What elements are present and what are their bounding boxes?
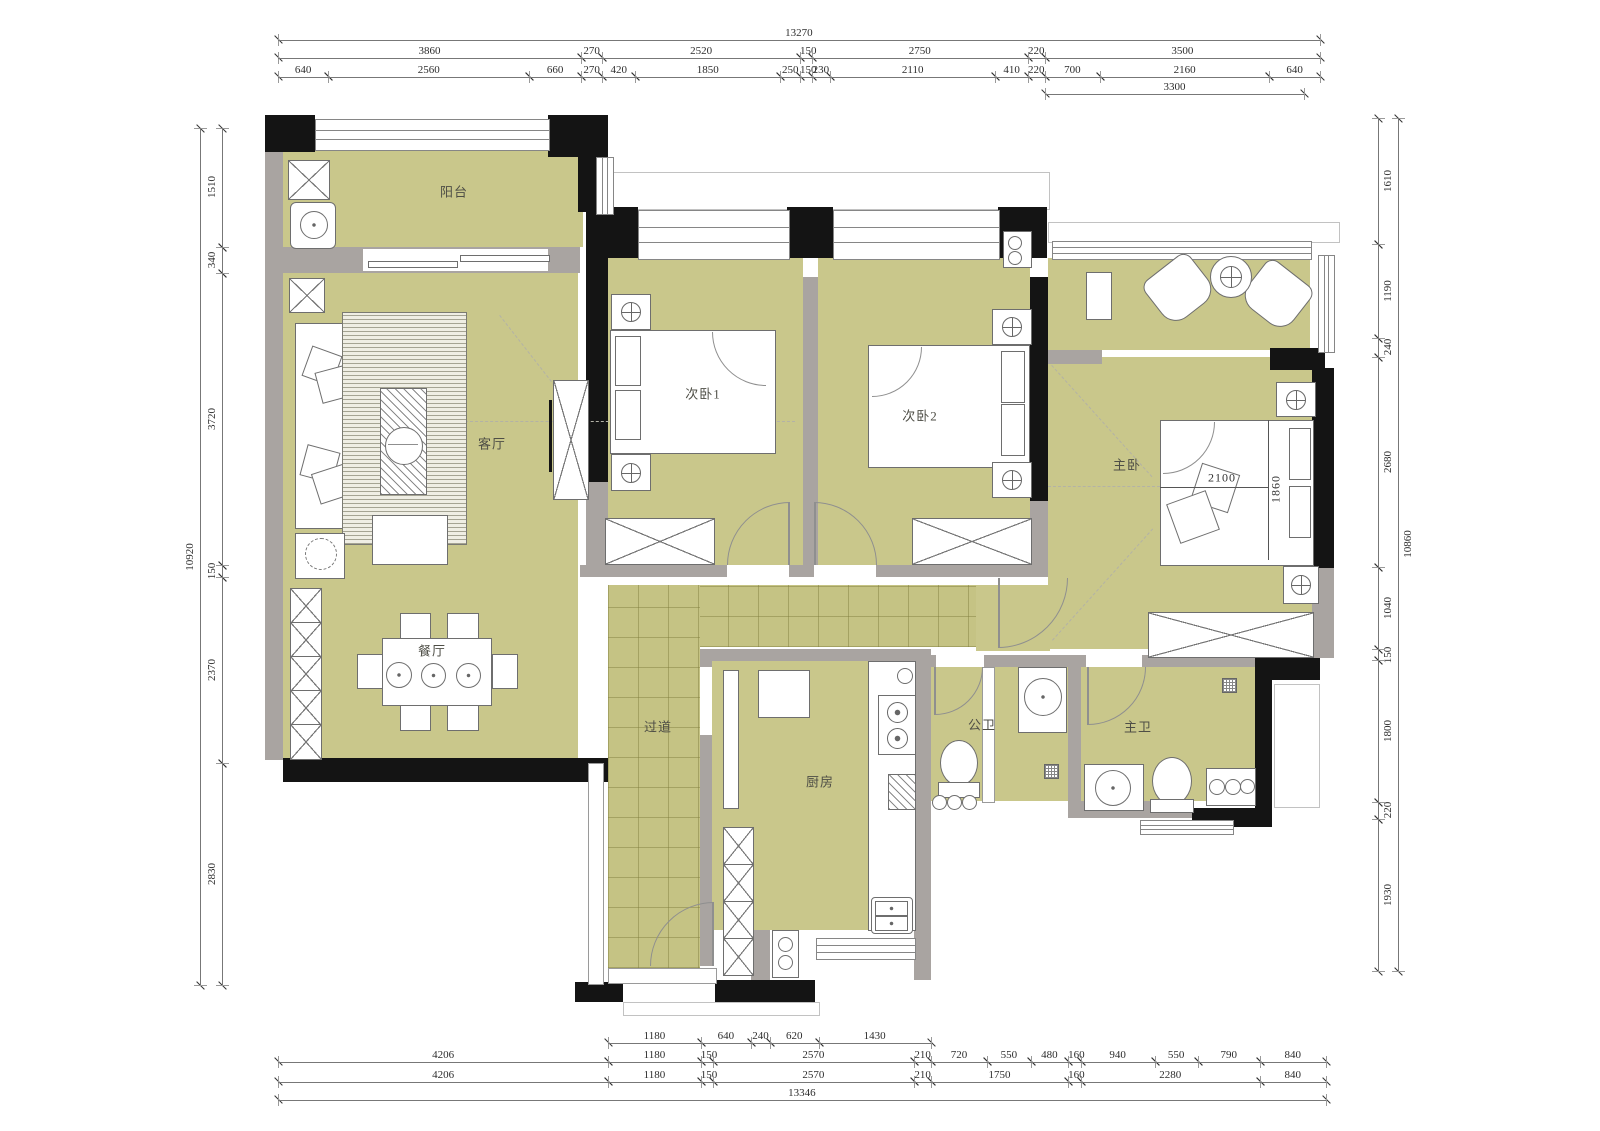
cabinet xyxy=(290,724,322,760)
chair xyxy=(492,654,518,689)
dim-label: 1430 xyxy=(819,1030,931,1042)
dim-label: 1040 xyxy=(1382,586,1394,630)
dim-label: 1190 xyxy=(1382,269,1394,313)
dim-label: 2570 xyxy=(713,1069,915,1081)
dresser-bowl xyxy=(1008,251,1022,265)
fan-symbol xyxy=(385,427,423,465)
room-label-bath-public: 公卫 xyxy=(968,715,996,734)
cabinet xyxy=(723,827,754,865)
door-opening xyxy=(1086,655,1142,667)
dim-label: 2160 xyxy=(1100,64,1270,76)
cabinet xyxy=(723,901,754,939)
cabinet xyxy=(723,864,754,902)
bed-width-label: 2100 xyxy=(1208,471,1236,486)
laundry-sink xyxy=(288,160,330,200)
wardrobe xyxy=(912,518,1032,565)
wall-segment xyxy=(1048,350,1102,364)
door-arc-bed1[interactable] xyxy=(727,502,790,565)
toilet-bowl xyxy=(1152,757,1192,805)
wall-black xyxy=(586,210,608,482)
corridor-edge xyxy=(596,577,1048,585)
dim-label: 2520 xyxy=(602,45,800,57)
dim-label: 1180 xyxy=(608,1049,701,1061)
dim-label: 1180 xyxy=(608,1069,701,1081)
door-opening xyxy=(936,655,984,667)
cabinet xyxy=(290,622,322,658)
dim-label: 840 xyxy=(1260,1049,1326,1061)
dresser-bowl xyxy=(1008,236,1022,250)
wall-black xyxy=(1255,658,1320,680)
kitchen-sink-round xyxy=(897,668,913,684)
dim-label: 13346 xyxy=(278,1087,1326,1099)
dim-mark xyxy=(222,128,223,985)
shelf-bowl xyxy=(947,795,962,810)
door-opening xyxy=(700,667,712,735)
wall-black xyxy=(1255,680,1272,810)
dim-label: 550 xyxy=(1155,1049,1198,1061)
dim-label: 1750 xyxy=(931,1069,1068,1081)
dim-mark xyxy=(1320,34,1321,46)
dim-mark xyxy=(194,985,207,986)
dim-label: 2570 xyxy=(713,1049,915,1061)
dim-label: 2110 xyxy=(830,64,996,76)
plate xyxy=(421,663,446,688)
oven-knob xyxy=(778,955,793,970)
desk xyxy=(1086,272,1112,320)
tall-cabinet xyxy=(723,670,739,809)
dim-label: 150 xyxy=(1382,633,1394,677)
dim-label: 2750 xyxy=(812,45,1028,57)
dim-label: 1610 xyxy=(1382,159,1394,203)
door-opening xyxy=(727,565,789,577)
shelf-bowl xyxy=(962,795,977,810)
door-arc-entry[interactable] xyxy=(650,902,714,966)
floor-drain xyxy=(1222,678,1237,693)
dim-label: 840 xyxy=(1260,1069,1326,1081)
dim-label: 640 xyxy=(1269,64,1319,76)
dim-mark xyxy=(1398,118,1399,971)
lamp xyxy=(621,302,641,322)
plate xyxy=(456,663,481,688)
tv xyxy=(549,400,552,472)
dim-label: 700 xyxy=(1045,64,1100,76)
wall-black xyxy=(715,980,815,1002)
chair xyxy=(400,704,431,731)
wall-kitchen-top xyxy=(700,649,931,661)
ledge-porch xyxy=(623,1002,820,1016)
dim-label: 790 xyxy=(1198,1049,1260,1061)
column xyxy=(787,207,833,258)
room-label-bed2: 次卧2 xyxy=(902,406,938,425)
lamp xyxy=(1002,317,1022,337)
door-leaf xyxy=(814,502,816,565)
sink-basin xyxy=(875,916,908,931)
blanket-fold xyxy=(872,347,922,397)
dim-label: 3720 xyxy=(206,397,218,441)
dim-mark xyxy=(278,40,1320,41)
dim-mark xyxy=(278,77,1320,78)
tv-cabinet xyxy=(553,380,589,500)
plant xyxy=(305,538,337,570)
blanket-fold xyxy=(712,332,766,386)
dim-label: 1800 xyxy=(1382,709,1394,753)
door-leaf xyxy=(934,667,936,715)
dim-label: 150 xyxy=(206,549,218,593)
door-arc-master[interactable] xyxy=(998,578,1068,648)
room-label-bed1: 次卧1 xyxy=(685,384,721,403)
dim-label: 10920 xyxy=(184,535,196,579)
floor-drain xyxy=(1044,764,1059,779)
toilet-tank xyxy=(1150,799,1194,813)
dim-mark xyxy=(1304,88,1305,100)
dim-label: 420 xyxy=(602,64,635,76)
floor-plan: 2100 1860 阳台 客厅 次卧1 次卧2 主卧 餐厅 过道 厨房 公卫 主… xyxy=(0,0,1600,1131)
dim-mark xyxy=(278,1062,1326,1063)
dim-label: 340 xyxy=(206,238,218,282)
room-label-kitchen: 厨房 xyxy=(806,772,834,791)
chair xyxy=(447,704,479,731)
dim-label: 550 xyxy=(987,1049,1030,1061)
wall-segment xyxy=(265,115,283,760)
dim-label: 2680 xyxy=(1382,440,1394,484)
wardrobe xyxy=(605,518,715,565)
fan-blade xyxy=(388,444,418,445)
dim-label: 4206 xyxy=(278,1049,608,1061)
blanket-fold xyxy=(1163,422,1215,474)
cabinet xyxy=(289,278,325,313)
toilet-bowl xyxy=(940,740,978,786)
dim-label: 640 xyxy=(701,1030,751,1042)
dim-mark xyxy=(200,128,201,985)
sink-basin xyxy=(875,901,908,916)
room-label-master: 主卧 xyxy=(1113,455,1141,474)
dim-mark xyxy=(1320,52,1321,64)
dim-label: 2370 xyxy=(206,648,218,692)
wall-segment xyxy=(1068,667,1081,801)
cabinet xyxy=(290,588,322,624)
pillow xyxy=(1001,351,1025,403)
window xyxy=(816,938,916,960)
dim-mark xyxy=(1326,1094,1327,1106)
dim-label: 410 xyxy=(995,64,1027,76)
cabinet xyxy=(723,938,754,976)
shelf-bowl xyxy=(1240,779,1255,794)
dim-label: 940 xyxy=(1081,1049,1155,1061)
chair xyxy=(447,613,479,640)
column xyxy=(265,115,315,152)
cabinet xyxy=(290,690,322,726)
dim-mark xyxy=(278,58,1320,59)
dim-label: 10860 xyxy=(1402,522,1414,566)
dim-mark xyxy=(1045,94,1304,95)
dim-mark xyxy=(1326,1056,1327,1068)
dim-mark xyxy=(1326,1076,1327,1088)
dim-label: 660 xyxy=(529,64,581,76)
fridge xyxy=(758,670,810,718)
wall-segment xyxy=(914,667,931,980)
dim-label: 620 xyxy=(770,1030,819,1042)
window xyxy=(1140,820,1234,835)
wall-black xyxy=(575,982,623,1002)
lamp xyxy=(1002,470,1022,490)
entry-threshold xyxy=(608,968,717,984)
door-opening xyxy=(814,565,876,577)
dim-mark xyxy=(608,1043,931,1044)
wall-black xyxy=(283,758,608,782)
dim-mark xyxy=(1372,971,1385,972)
oven-knob xyxy=(778,937,793,952)
dim-label: 13270 xyxy=(278,27,1320,39)
burner xyxy=(887,702,908,723)
ledge xyxy=(1048,222,1340,243)
pillow xyxy=(1289,428,1311,480)
dim-label: 1510 xyxy=(206,165,218,209)
dim-label: 3860 xyxy=(278,45,581,57)
chair xyxy=(357,654,383,689)
lamp xyxy=(1291,575,1311,595)
pillow xyxy=(615,336,641,386)
burner xyxy=(887,728,908,749)
sliding-door-panel[interactable] xyxy=(460,255,550,262)
lamp xyxy=(621,463,641,483)
washing-machine-drum xyxy=(300,211,328,239)
ledge xyxy=(1274,684,1320,808)
door-leaf xyxy=(788,502,790,565)
window xyxy=(638,210,790,260)
dim-label: 640 xyxy=(278,64,328,76)
dim-label: 480 xyxy=(1031,1049,1069,1061)
chair xyxy=(400,613,431,640)
window xyxy=(833,210,1000,260)
dim-label: 2280 xyxy=(1081,1069,1260,1081)
ledge xyxy=(606,172,1050,210)
dashed-sightline xyxy=(1048,486,1160,487)
dim-mark xyxy=(216,985,229,986)
dim-label: 2830 xyxy=(206,852,218,896)
wall-black xyxy=(1270,348,1325,370)
window xyxy=(315,119,550,151)
door-leaf xyxy=(712,902,714,966)
lamp xyxy=(1286,390,1306,410)
room-label-hallway: 过道 xyxy=(644,717,672,736)
wall-light xyxy=(588,763,604,985)
shower-partition xyxy=(982,667,995,803)
dim-mark xyxy=(1320,71,1321,83)
basin xyxy=(1024,678,1062,716)
wall-black xyxy=(1030,277,1048,501)
dim-line xyxy=(1160,487,1268,488)
room-label-living: 客厅 xyxy=(478,434,506,453)
cabinet xyxy=(290,656,322,692)
dim-label: 3500 xyxy=(1045,45,1320,57)
room-label-balcony: 阳台 xyxy=(440,182,468,201)
room-label-bath-master: 主卫 xyxy=(1124,717,1152,736)
dim-mark xyxy=(278,1082,1326,1083)
window xyxy=(596,157,614,215)
corner-shelf xyxy=(888,774,916,810)
dim-label: 1930 xyxy=(1382,873,1394,917)
dim-label: 1180 xyxy=(608,1030,701,1042)
dim-label: 240 xyxy=(1382,325,1394,369)
dim-label: 2560 xyxy=(328,64,529,76)
door-leaf xyxy=(1087,667,1089,725)
dim-mark xyxy=(931,1037,932,1049)
door-arc-bed2[interactable] xyxy=(814,502,877,565)
room-label-dining: 餐厅 xyxy=(418,641,446,660)
dim-label: 220 xyxy=(1382,788,1394,832)
bed-depth-label: 1860 xyxy=(1269,475,1284,503)
wardrobe xyxy=(1148,612,1314,658)
pillow xyxy=(1289,486,1311,538)
side-table xyxy=(372,515,448,565)
shelf-bowl xyxy=(1225,779,1241,795)
window xyxy=(1318,255,1335,353)
dim-label: 3300 xyxy=(1045,81,1304,93)
door-arc-bath-public[interactable] xyxy=(935,667,983,715)
dim-mark xyxy=(1392,971,1405,972)
pillow xyxy=(1001,404,1025,456)
shelf-bowl xyxy=(1209,779,1225,795)
lamp xyxy=(1220,266,1242,288)
shelf-bowl xyxy=(932,795,947,810)
dim-mark xyxy=(278,1100,1326,1101)
plate xyxy=(386,662,412,688)
basin xyxy=(1095,770,1131,806)
dim-label: 720 xyxy=(931,1049,988,1061)
pillow xyxy=(615,390,641,440)
dim-mark xyxy=(1378,118,1379,971)
door-leaf xyxy=(998,578,1000,648)
dim-label: 4206 xyxy=(278,1069,608,1081)
dim-label: 1850 xyxy=(635,64,780,76)
sliding-door-panel[interactable] xyxy=(368,261,458,268)
